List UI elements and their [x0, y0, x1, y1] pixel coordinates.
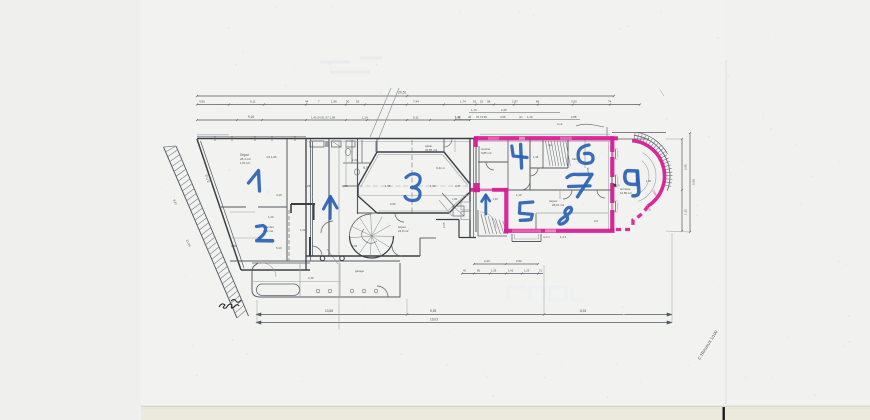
- svg-text:1,35: 1,35: [533, 155, 539, 159]
- svg-text:9,11: 9,11: [250, 100, 256, 104]
- svg-text:2,0: 2,0: [594, 219, 598, 223]
- svg-text:5,10: 5,10: [276, 246, 282, 250]
- svg-text:1,35: 1,35: [646, 179, 652, 183]
- svg-text:3,05: 3,05: [390, 202, 396, 206]
- svg-text:5,35: 5,35: [430, 309, 436, 313]
- svg-text:2,47: 2,47: [455, 184, 461, 188]
- svg-text:91: 91: [473, 100, 477, 104]
- svg-text:1,60: 1,60: [430, 184, 436, 188]
- svg-text:4,5 1,96: 4,5 1,96: [266, 155, 277, 159]
- svg-text:20,51: 20,51: [398, 91, 407, 95]
- svg-text:90: 90: [346, 100, 350, 104]
- svg-text:8,33: 8,33: [580, 309, 586, 313]
- svg-text:4,2 m: 4,2 m: [543, 235, 551, 239]
- svg-text:49: 49: [468, 115, 472, 119]
- svg-text:1,70: 1,70: [471, 108, 477, 112]
- svg-text:2,95: 2,95: [586, 167, 590, 173]
- svg-text:52: 52: [356, 100, 360, 104]
- svg-text:9,5: 9,5: [363, 166, 368, 170]
- svg-text:C+3: C+3: [557, 122, 563, 126]
- svg-text:1,98: 1,98: [342, 184, 348, 188]
- svg-text:1,50 4,0: 1,50 4,0: [240, 161, 250, 165]
- svg-text:1,80: 1,80: [452, 197, 458, 201]
- svg-text:86: 86: [536, 100, 540, 104]
- svg-text:hall: hall: [572, 157, 577, 161]
- svg-text:9,85 m2: 9,85 m2: [481, 151, 492, 155]
- svg-text:74: 74: [608, 100, 612, 104]
- svg-text:2,43: 2,43: [308, 276, 314, 280]
- svg-text:4,55: 4,55: [500, 115, 506, 119]
- svg-text:1,41 04 91 67 1,98: 1,41 04 91 67 1,98: [311, 116, 336, 120]
- svg-text:1,25: 1,25: [524, 269, 530, 273]
- svg-text:5,98: 5,98: [692, 179, 696, 185]
- svg-text:1,10: 1,10: [527, 115, 533, 119]
- svg-text:51: 51: [480, 100, 484, 104]
- svg-text:2,88: 2,88: [571, 115, 577, 119]
- svg-text:1,96: 1,96: [331, 100, 337, 104]
- svg-text:3,41 m: 3,41 m: [436, 166, 446, 170]
- svg-text:2,95: 2,95: [684, 164, 688, 170]
- svg-text:2,41: 2,41: [352, 158, 358, 162]
- svg-text:2,87: 2,87: [512, 100, 518, 104]
- svg-text:31: 31: [539, 269, 542, 273]
- svg-text:1,98: 1,98: [385, 184, 391, 188]
- svg-text:28,4 m2: 28,4 m2: [240, 157, 251, 161]
- svg-text:1,74: 1,74: [460, 100, 466, 104]
- svg-text:44: 44: [305, 100, 309, 104]
- svg-text:34,85 m2: 34,85 m2: [425, 148, 437, 152]
- svg-text:2,52: 2,52: [516, 259, 522, 263]
- svg-text:1,10: 1,10: [493, 197, 499, 201]
- svg-text:1,35: 1,35: [491, 269, 497, 273]
- svg-text:1,20: 1,20: [300, 228, 306, 232]
- svg-text:2,05: 2,05: [442, 222, 446, 228]
- svg-text:1,20: 1,20: [268, 215, 274, 219]
- svg-text:garage: garage: [355, 269, 364, 273]
- svg-text:13,88: 13,88: [325, 309, 333, 313]
- svg-text:dgt: dgt: [548, 143, 552, 147]
- svg-text:1,4 2: 1,4 2: [560, 235, 567, 239]
- svg-text:8,11: 8,11: [413, 116, 419, 120]
- svg-text:9,16: 9,16: [248, 115, 254, 119]
- svg-text:1,35: 1,35: [684, 209, 688, 215]
- svg-text:40: 40: [463, 269, 466, 273]
- svg-text:85: 85: [477, 269, 480, 273]
- svg-text:1,86: 1,86: [305, 184, 311, 188]
- svg-text:0,35: 0,35: [352, 244, 358, 248]
- svg-text:(2): (2): [519, 115, 522, 119]
- svg-text:28,16 m2: 28,16 m2: [552, 203, 564, 207]
- svg-text:2,45: 2,45: [501, 108, 507, 112]
- svg-text:1,9: 1,9: [616, 184, 620, 188]
- svg-text:7,44: 7,44: [413, 100, 419, 104]
- svg-text:76 74 96: 76 74 96: [476, 115, 487, 119]
- svg-text:1,10: 1,10: [516, 193, 522, 197]
- svg-text:3,95: 3,95: [231, 244, 237, 248]
- svg-text:19,03: 19,03: [430, 318, 438, 322]
- svg-text:24,8 m2: 24,8 m2: [398, 229, 409, 233]
- svg-text:3,60: 3,60: [571, 100, 577, 104]
- svg-text:98: 98: [487, 100, 491, 104]
- svg-text:2,43: 2,43: [484, 259, 490, 263]
- svg-text:1,10: 1,10: [455, 115, 461, 119]
- svg-text:4,56: 4,56: [199, 100, 205, 104]
- svg-text:1,42: 1,42: [508, 269, 514, 273]
- svg-text:4,10: 4,10: [276, 193, 282, 197]
- svg-text:1,14: 1,14: [362, 116, 368, 120]
- svg-text:10,85 m2: 10,85 m2: [620, 191, 632, 195]
